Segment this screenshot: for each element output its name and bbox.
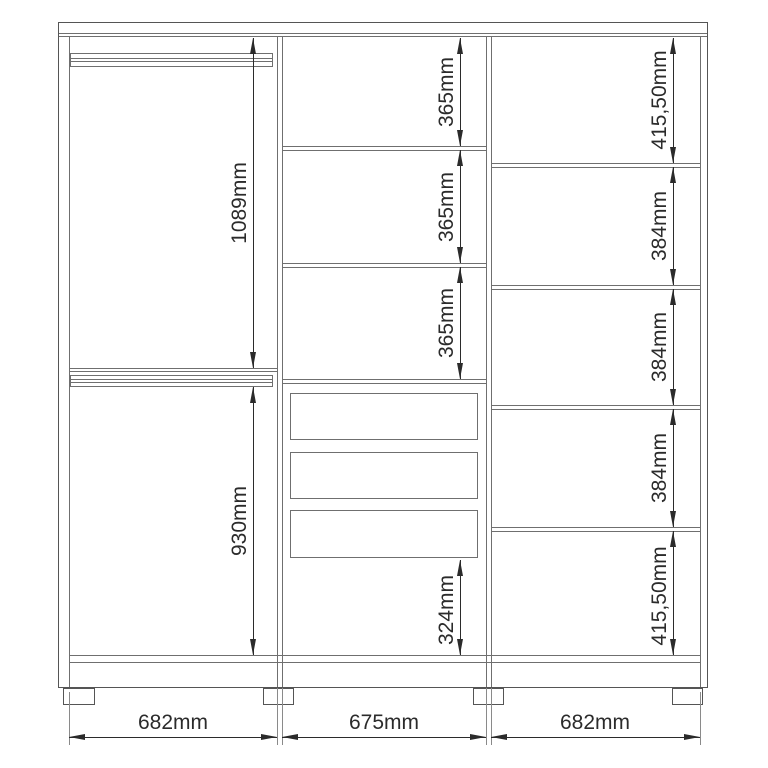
dimension-line — [673, 289, 674, 405]
wardrobe-dimension-diagram: 1089mm 930mm 365mm 365mm 365mm 324mm 415… — [0, 0, 768, 768]
frame-bottom-line — [58, 687, 708, 688]
cabinet-leg — [63, 688, 95, 705]
bottom-panel-line — [69, 662, 700, 663]
dimension-arrow — [282, 734, 298, 740]
dimension-arrow — [250, 387, 256, 403]
dim-label-right-shelf-2: 384mm — [648, 166, 672, 286]
dim-label-right-shelf-1: 415,50mm — [648, 40, 672, 160]
side-panel-inner-line — [69, 36, 70, 687]
dim-label-middle-bottom: 324mm — [435, 550, 459, 670]
extension-line — [486, 688, 487, 745]
hanging-rail-middle — [70, 375, 273, 376]
dim-label-right-shelf-5: 415,50mm — [648, 536, 672, 656]
middle-shelf-line — [283, 383, 486, 384]
dim-label-middle-shelf-2: 365mm — [435, 147, 459, 267]
hanging-rail-end-cap — [70, 53, 71, 67]
partition-left-line — [277, 36, 278, 687]
dimension-line — [282, 737, 486, 738]
top-panel-inner-line — [59, 33, 707, 34]
left-shelf-line — [69, 371, 278, 372]
hanging-rail-top — [70, 53, 273, 54]
dimension-arrow — [250, 38, 256, 54]
dimension-line — [673, 38, 674, 163]
hanging-rail-middle — [70, 379, 273, 380]
dim-label-right-shelf-4: 384mm — [648, 408, 672, 528]
top-panel-inner-line — [59, 36, 707, 37]
dimension-line — [673, 167, 674, 285]
cabinet-leg — [263, 688, 294, 705]
dimension-line — [673, 409, 674, 527]
dimension-line — [69, 737, 277, 738]
hanging-rail-end-cap — [70, 375, 71, 386]
frame-left-outer-line — [58, 22, 59, 688]
dim-label-width-left: 682mm — [113, 712, 233, 734]
hanging-rail-middle — [70, 382, 273, 383]
hanging-rail-middle — [70, 386, 273, 387]
dimension-arrow — [69, 734, 85, 740]
cabinet-leg — [672, 688, 703, 705]
bottom-panel-line — [69, 655, 700, 656]
dimension-line — [253, 38, 254, 368]
drawer-front — [290, 452, 478, 499]
dim-label-middle-shelf-1: 365mm — [435, 32, 459, 152]
hanging-rail-end-cap — [272, 53, 273, 67]
drawer-front — [290, 393, 478, 440]
frame-top-line — [58, 22, 708, 23]
extension-line — [277, 688, 278, 745]
extension-line — [700, 692, 701, 745]
dimension-line — [253, 387, 254, 655]
dimension-arrow — [491, 734, 507, 740]
dimension-arrow — [250, 639, 256, 655]
dimension-line — [673, 531, 674, 655]
dimension-arrow — [261, 734, 277, 740]
hanging-rail-top — [70, 61, 273, 62]
dim-label-left-lower: 930mm — [228, 461, 252, 581]
dim-label-middle-shelf-3: 365mm — [435, 263, 459, 383]
hanging-rail-end-cap — [272, 375, 273, 386]
partition-left-line — [282, 36, 283, 687]
dim-label-width-right: 682mm — [535, 712, 655, 734]
dimension-arrow — [250, 352, 256, 368]
hanging-rail-top — [70, 58, 273, 59]
dim-label-right-shelf-3: 384mm — [648, 287, 672, 407]
dimension-arrow — [684, 734, 700, 740]
side-panel-inner-line — [700, 36, 701, 687]
partition-right-line — [491, 36, 492, 687]
dimension-arrow — [470, 734, 486, 740]
dimension-line — [491, 737, 700, 738]
frame-right-outer-line — [707, 22, 708, 688]
right-shelf-line — [492, 531, 700, 532]
partition-right-line — [486, 36, 487, 687]
right-shelf-line — [492, 163, 700, 164]
dim-label-left-upper: 1089mm — [228, 143, 252, 263]
dim-label-width-center: 675mm — [324, 712, 444, 734]
left-shelf-line — [69, 368, 278, 369]
cabinet-leg — [473, 688, 504, 705]
hanging-rail-top — [70, 66, 273, 67]
